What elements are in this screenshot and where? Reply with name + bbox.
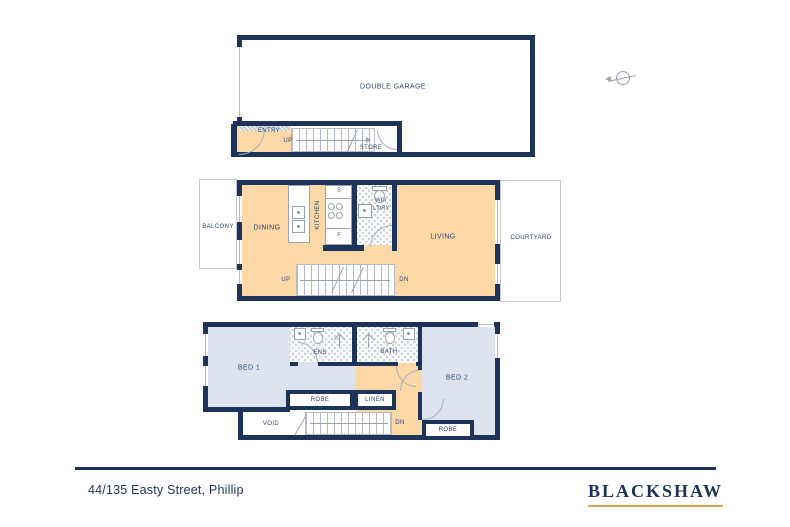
room-label-wc-1: WC/: [375, 198, 386, 204]
stairs-up-label-living: UP: [281, 277, 290, 283]
window-balcony-door-2: [237, 240, 242, 264]
toilet-bowl: [385, 332, 395, 344]
garage-door-opening: [237, 47, 242, 117]
wall-bed2-upper: [418, 325, 422, 370]
bench-divider-1: [326, 198, 351, 199]
bed1-bottom-wall: [203, 407, 290, 412]
bedroom-stairs-arrow: [310, 423, 388, 424]
room-label-wc-2: L'DRY: [373, 206, 390, 212]
stairs-up-label-garage: UP: [283, 138, 292, 144]
appliance-label-sink: S: [337, 188, 341, 194]
room-label-robe1: ROBE: [311, 397, 330, 403]
window-bed2-top: [478, 322, 494, 327]
basin-dot: [298, 332, 301, 335]
garage-stairs-arrowhead: [366, 137, 371, 143]
wall-wc-right: [392, 181, 397, 251]
wall-ens-bath: [352, 325, 357, 363]
washer-dot: [363, 209, 366, 212]
shower-icon: [331, 328, 348, 350]
store-end-wall: [397, 124, 402, 157]
wall-wet-bottom-1: [290, 362, 298, 366]
stairs-down-label-living: DN: [399, 277, 408, 283]
basin-dot: [407, 332, 410, 335]
wall-bench-bottom: [323, 245, 364, 251]
room-label-bath: BATH: [380, 349, 397, 355]
room-label-dining: DINING: [254, 225, 281, 232]
room-label-living: LIVING: [430, 234, 455, 241]
room-label-kitchen: KITCHEN: [315, 200, 321, 229]
cooktop-icon: [336, 212, 343, 219]
room-label-double-garage: DOUBLE GARAGE: [360, 84, 426, 91]
window-balcony-door-1: [237, 196, 242, 222]
floorplan-canvas: DOUBLE GARAGE ENTRY UP STORE BALCONY COU…: [0, 0, 790, 527]
window-bed1-1: [203, 334, 208, 356]
wall-bed2-lower: [418, 392, 422, 420]
window-bed2-right: [495, 334, 500, 358]
room-label-void: VOID: [263, 421, 279, 427]
room-label-store: STORE: [360, 145, 383, 151]
wall-wet-bottom-2: [318, 362, 398, 366]
toilet-bowl: [313, 332, 323, 344]
brand-logo: BLACKSHAW: [588, 481, 723, 507]
footer-rule: [75, 467, 716, 470]
window-courtyard-door: [495, 200, 500, 244]
bench-divider-2: [326, 228, 351, 229]
cooktop-icon: [336, 203, 343, 210]
room-label-bed1: BED 1: [238, 365, 260, 372]
cooktop-icon: [328, 203, 335, 210]
property-address: 44/135 Easty Street, Phillip: [88, 483, 244, 497]
room-label-linen: LINEN: [365, 397, 385, 403]
sink-dot-2: [297, 225, 300, 228]
compass-arrowhead: [605, 76, 611, 82]
appliance-label-fridge: F: [337, 233, 341, 239]
stairs-down-label-bedroom: DN: [395, 420, 404, 426]
sink-dot: [297, 211, 300, 214]
room-label-ens: ENS: [313, 350, 327, 356]
window-living-right: [495, 264, 500, 284]
room-label-courtyard: COURTYARD: [510, 235, 551, 241]
window-bed1-2: [203, 366, 208, 386]
window-balcony-door-3: [237, 270, 242, 284]
shower-icon: [360, 328, 377, 350]
room-label-balcony: BALCONY: [202, 224, 233, 230]
room-label-entry: ENTRY: [258, 128, 280, 134]
cooktop-icon: [328, 212, 335, 219]
garage-stairs-arrow: [296, 140, 366, 141]
living-stairs-arrow: [300, 280, 390, 281]
courtyard-area: [500, 180, 561, 302]
room-label-bed2: BED 2: [446, 375, 468, 382]
room-label-robe2: ROBE: [439, 427, 458, 433]
